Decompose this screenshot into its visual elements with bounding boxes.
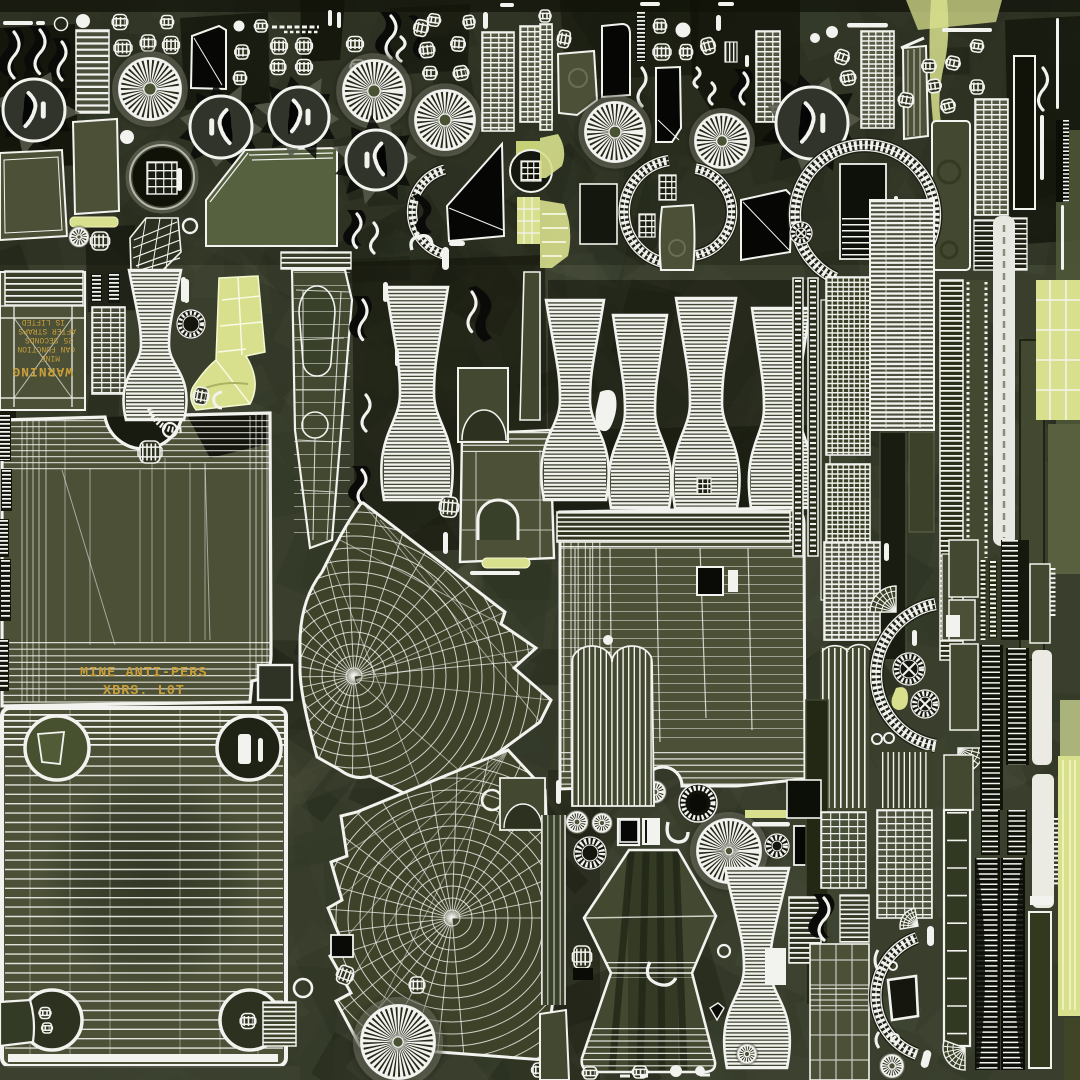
- svg-text:WARNING: WARNING: [11, 364, 73, 379]
- svg-text:25 SECONDS: 25 SECONDS: [25, 335, 73, 344]
- svg-text:CAN FUNCTION: CAN FUNCTION: [17, 344, 75, 353]
- svg-text:IS LIFTED: IS LIFTED: [22, 317, 65, 326]
- svg-text:MINE ANTI-PERS: MINE ANTI-PERS: [80, 666, 207, 681]
- svg-text:XBRS. L0T: XBRS. L0T: [103, 684, 185, 699]
- svg-text:MINE: MINE: [41, 353, 60, 362]
- svg-text:AFTER STRAPS: AFTER STRAPS: [18, 326, 76, 335]
